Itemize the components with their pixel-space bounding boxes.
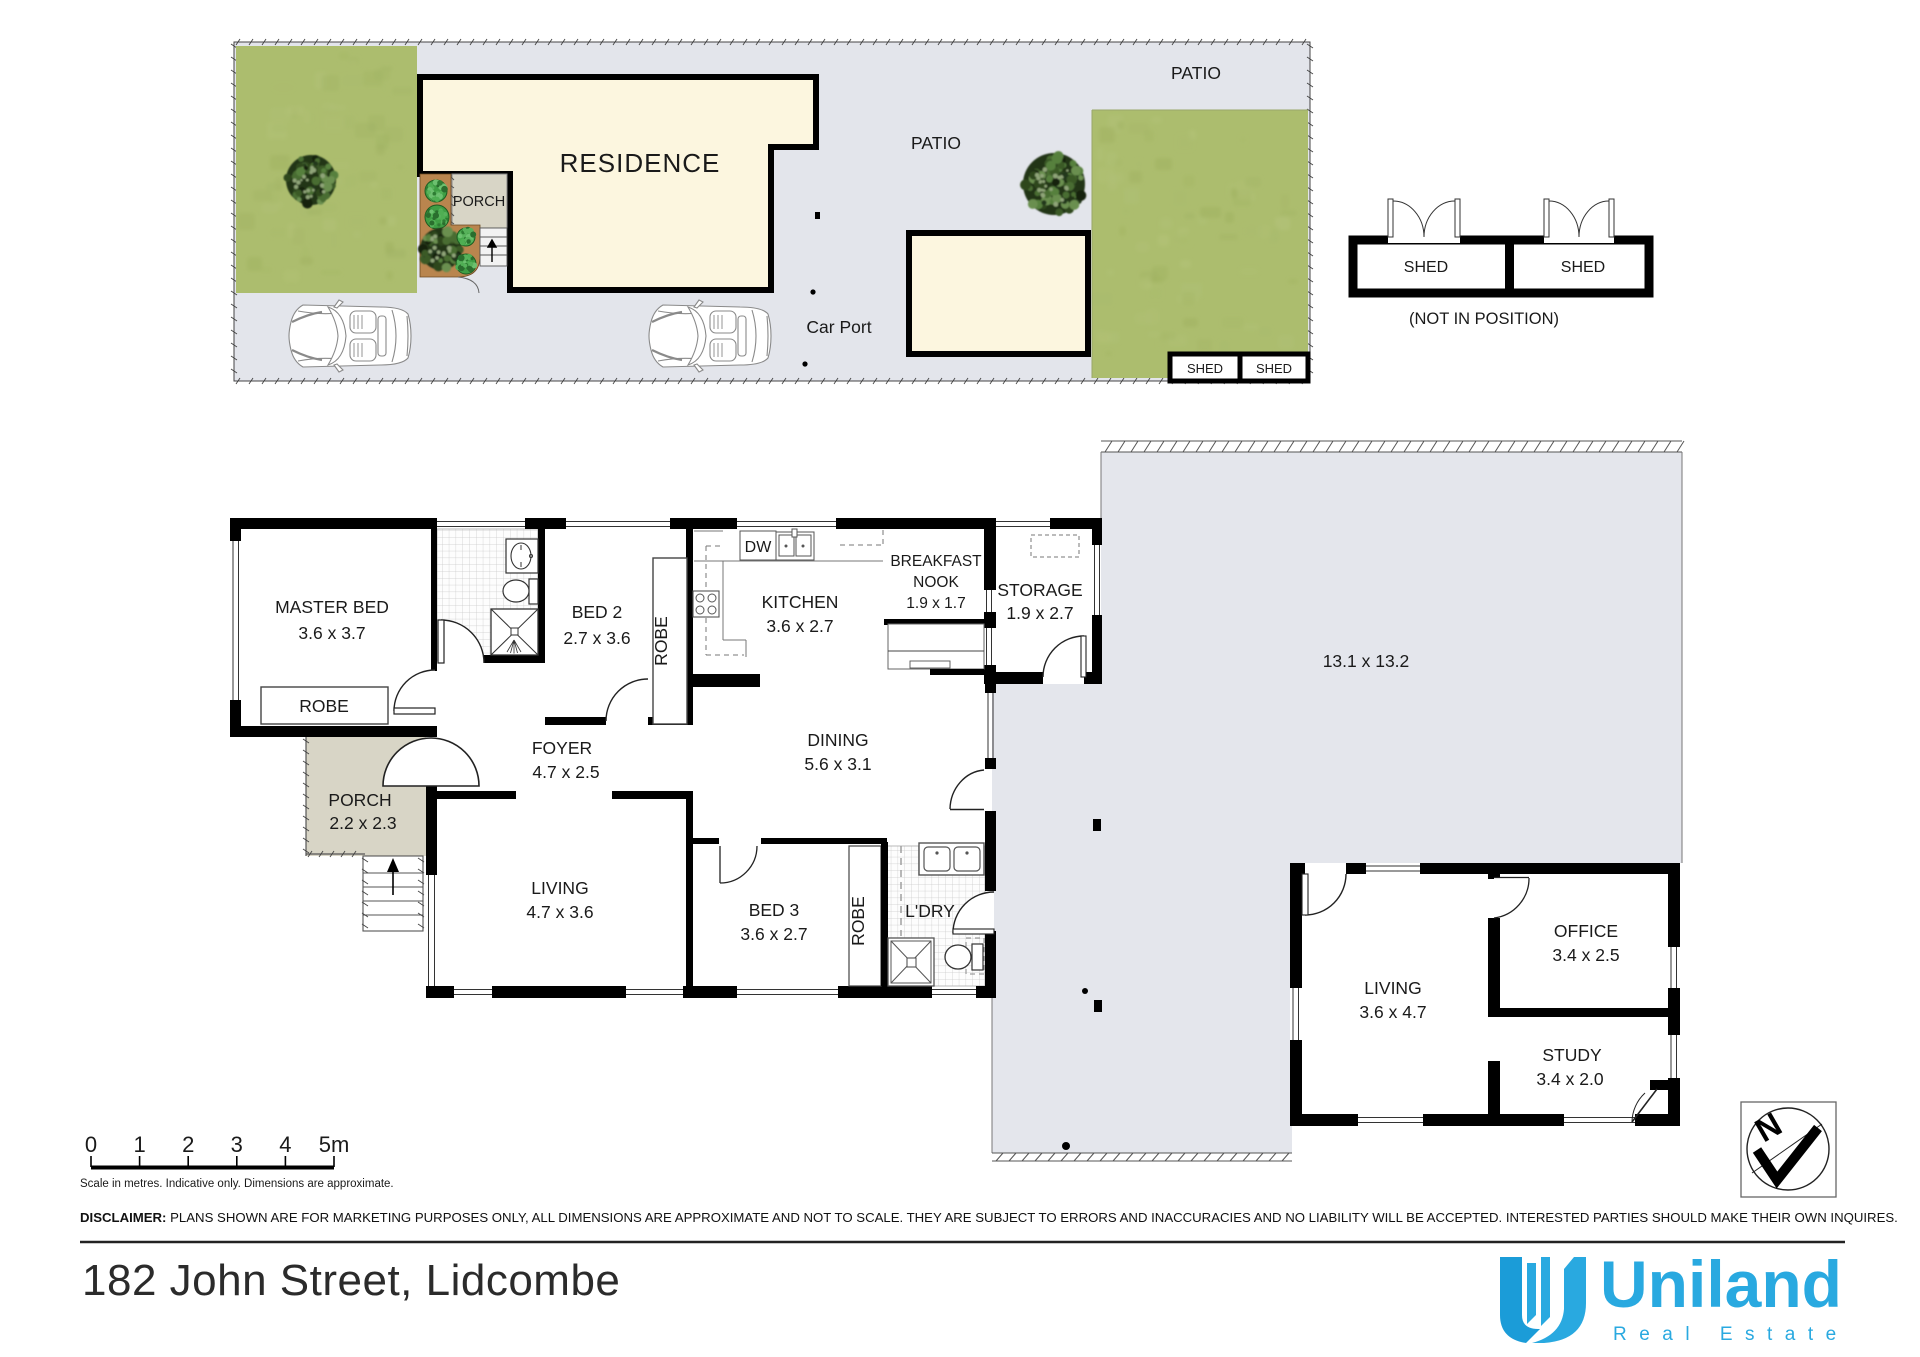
svg-text:(NOT IN POSITION): (NOT IN POSITION)	[1409, 310, 1559, 328]
svg-text:3.4 x 2.5: 3.4 x 2.5	[1552, 945, 1619, 965]
svg-text:182 John Street, Lidcombe: 182 John Street, Lidcombe	[82, 1256, 620, 1305]
svg-text:STUDY: STUDY	[1542, 1045, 1602, 1065]
svg-text:BREAKFAST: BREAKFAST	[890, 553, 982, 570]
svg-text:DISCLAIMER: PLANS SHOWN ARE FO: DISCLAIMER: PLANS SHOWN ARE FOR MARKETIN…	[80, 1210, 1898, 1225]
svg-text:NOOK: NOOK	[913, 574, 959, 591]
svg-text:3.4 x 2.0: 3.4 x 2.0	[1536, 1069, 1603, 1089]
svg-text:SHED: SHED	[1187, 361, 1223, 376]
svg-text:PATIO: PATIO	[911, 133, 961, 153]
svg-text:PATIO: PATIO	[1171, 63, 1221, 83]
svg-text:LIVING: LIVING	[1364, 978, 1421, 998]
svg-text:L'DRY: L'DRY	[905, 901, 955, 921]
svg-text:Real Estate: Real Estate	[1613, 1324, 1849, 1345]
svg-text:Car Port: Car Port	[806, 317, 871, 337]
svg-text:2.7 x 3.6: 2.7 x 3.6	[563, 628, 630, 648]
svg-text:3.6 x 3.7: 3.6 x 3.7	[298, 623, 365, 643]
svg-text:DINING: DINING	[807, 730, 868, 750]
svg-text:OFFICE: OFFICE	[1554, 921, 1618, 941]
svg-text:SHED: SHED	[1561, 259, 1605, 276]
svg-text:1.9 x 2.7: 1.9 x 2.7	[1006, 603, 1073, 623]
svg-text:2: 2	[182, 1132, 194, 1157]
svg-text:DW: DW	[745, 539, 773, 556]
svg-text:1: 1	[133, 1132, 145, 1157]
svg-text:BED 3: BED 3	[749, 900, 800, 920]
svg-text:ROBE: ROBE	[299, 696, 349, 716]
svg-text:3.6 x 4.7: 3.6 x 4.7	[1359, 1002, 1426, 1022]
svg-text:KITCHEN: KITCHEN	[762, 592, 839, 612]
svg-text:SHED: SHED	[1256, 361, 1292, 376]
svg-text:3.6 x 2.7: 3.6 x 2.7	[766, 616, 833, 636]
svg-text:2.2 x 2.3: 2.2 x 2.3	[329, 813, 396, 833]
svg-text:Scale in metres. Indicative on: Scale in metres. Indicative only. Dimens…	[80, 1178, 394, 1190]
svg-text:MASTER BED: MASTER BED	[275, 597, 389, 617]
svg-text:PORCH: PORCH	[328, 790, 391, 810]
svg-text:13.1 x 13.2: 13.1 x 13.2	[1323, 651, 1410, 671]
svg-text:ROBE: ROBE	[651, 616, 671, 666]
svg-text:BED 2: BED 2	[572, 602, 623, 622]
svg-text:3.6 x 2.7: 3.6 x 2.7	[740, 924, 807, 944]
svg-text:1.9 x 1.7: 1.9 x 1.7	[906, 595, 965, 612]
svg-text:PORCH: PORCH	[453, 194, 505, 210]
svg-text:STORAGE: STORAGE	[997, 580, 1082, 600]
svg-text:3: 3	[231, 1132, 243, 1157]
svg-text:5m: 5m	[319, 1132, 350, 1157]
svg-text:FOYER: FOYER	[532, 738, 592, 758]
svg-text:ROBE: ROBE	[848, 896, 868, 946]
svg-text:0: 0	[85, 1132, 97, 1157]
svg-text:LIVING: LIVING	[531, 878, 588, 898]
svg-text:4.7 x 2.5: 4.7 x 2.5	[532, 762, 599, 782]
svg-text:Uniland: Uniland	[1600, 1247, 1842, 1321]
svg-text:RESIDENCE: RESIDENCE	[560, 148, 721, 178]
svg-text:4.7 x 3.6: 4.7 x 3.6	[526, 902, 593, 922]
svg-text:4: 4	[279, 1132, 291, 1157]
svg-text:5.6 x 3.1: 5.6 x 3.1	[804, 754, 871, 774]
svg-text:SHED: SHED	[1404, 259, 1448, 276]
